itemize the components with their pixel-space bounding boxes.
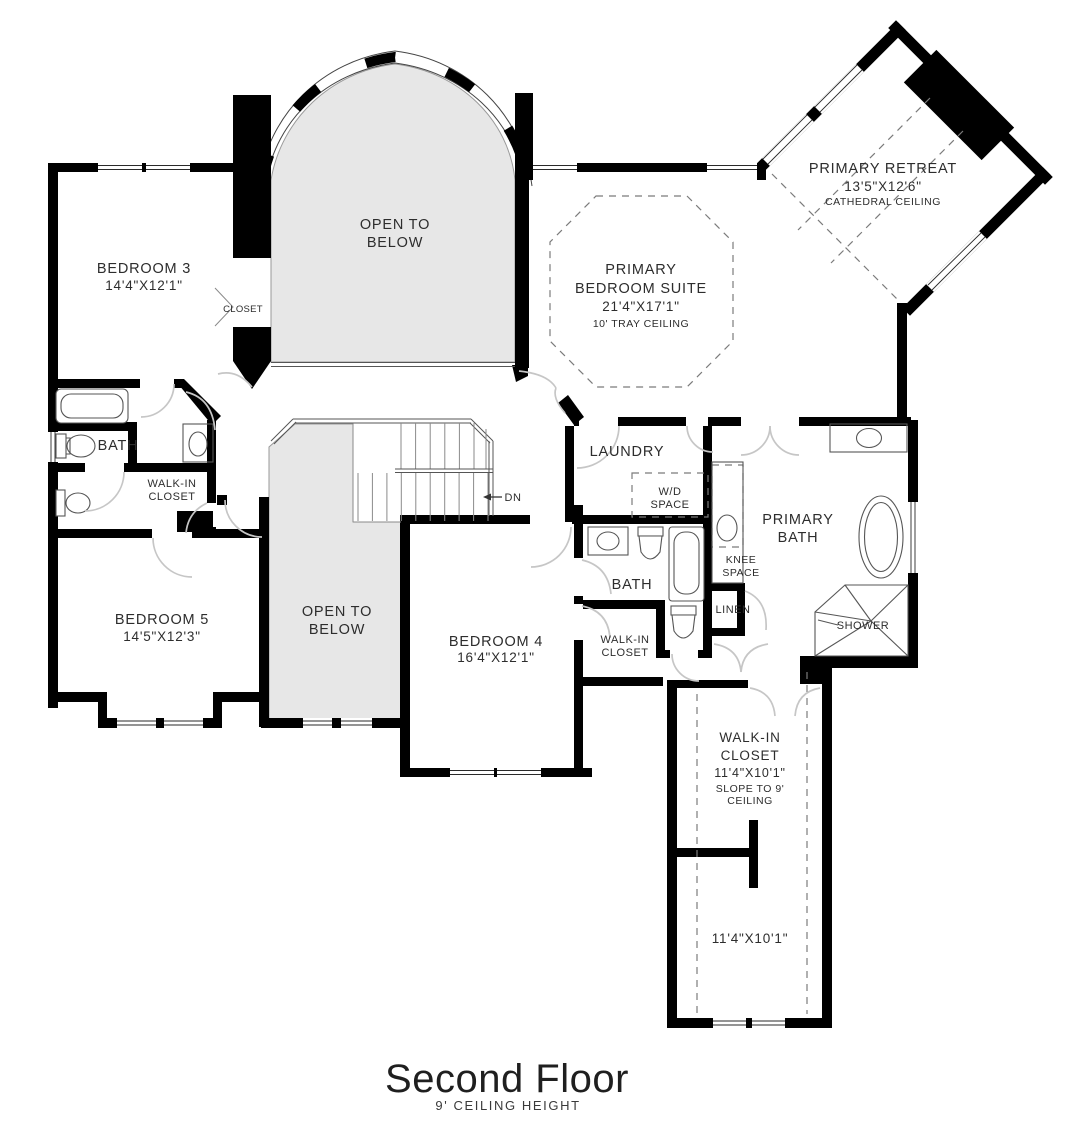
dn-label: DN [505,492,522,504]
window [146,163,190,172]
knee-label-1: KNEE [726,554,757,566]
toilet [56,490,90,516]
window [908,502,918,573]
stair-treads-upper [401,423,486,469]
knee-label-2: SPACE [722,567,759,579]
window [164,718,203,728]
toilet [56,434,95,458]
linen-label: LINEN [716,604,751,616]
closet3-label: CLOSET [223,304,263,315]
suite-label-2: BEDROOM SUITE [575,281,707,297]
wd-label-1: W/D [659,486,682,498]
bedroom5-label: BEDROOM 5 [115,612,209,628]
retreat-label: PRIMARY RETREAT [809,161,957,177]
wicp-slope-2: CEILING [727,795,773,807]
window [117,718,156,728]
bedroom3-dims: 14'4"X12'1" [105,278,183,293]
bedroom4-label: BEDROOM 4 [449,634,543,650]
open-below-top-label-2: BELOW [367,235,423,251]
window [752,1018,785,1028]
open-below-top-label-1: OPEN TO [360,217,430,233]
primary-vanity [830,424,907,452]
bedroom4-dims: 16'4"X12'1" [457,650,535,665]
shower-label: SHOWER [837,620,890,632]
bedroom3-label: BEDROOM 3 [97,261,191,277]
wicp-label-2: CLOSET [721,748,780,763]
floor-plan-page: BEDROOM 3 14'4"X12'1" CLOSET OPEN TO BEL… [0,0,1080,1137]
bath4-label: BATH [612,577,653,593]
primary-bath-label-2: BATH [778,530,819,546]
window [713,1018,746,1028]
suite-label-1: PRIMARY [605,262,676,278]
window [341,718,372,728]
wic4-label-2: CLOSET [601,647,648,659]
stair-treads-lower [358,473,488,521]
retreat-dims: 13'5"X12'6" [844,179,922,194]
window [707,163,757,172]
bedroom5-dims: 14'5"X12'3" [123,629,201,644]
suite-ceiling: 10' TRAY CEILING [593,318,689,330]
open-to-below-top-area [271,64,515,362]
open-below-mid-label-1: OPEN TO [302,604,372,620]
page-subtitle: 9' CEILING HEIGHT [435,1098,580,1113]
wic4-label-1: WALK-IN [601,634,650,646]
bathtub [669,527,704,601]
page-title: Second Floor [385,1057,629,1101]
window [303,718,332,728]
open-below-mid-label-2: BELOW [309,622,365,638]
suite-dims: 21'4"X17'1" [602,299,680,314]
wicp-label-1: WALK-IN [719,730,780,745]
bath3-label: BATH [98,438,139,454]
open-to-below-areas [269,64,515,726]
floor-plan-drawing: BEDROOM 3 14'4"X12'1" CLOSET OPEN TO BEL… [0,0,1080,1137]
bath4-sink [588,527,628,555]
laundry-label: LAUNDRY [590,444,665,460]
window [98,163,142,172]
retreat-ceiling: CATHEDRAL CEILING [825,196,941,208]
freestanding-tub [859,496,903,578]
open-to-below-mid-area [269,424,401,726]
window [497,768,541,777]
wicp-dims: 11'4"X10'1" [714,766,786,780]
wic5-label-1: WALK-IN [148,478,197,490]
window [533,163,577,172]
wicp-slope-1: SLOPE TO 9' [716,783,784,795]
toilet [671,606,696,638]
wd-label-2: SPACE [651,499,690,511]
primary-bath-label-1: PRIMARY [762,512,833,528]
wic5-label-2: CLOSET [148,491,195,503]
wicp-dims-lower: 11'4"X10'1" [712,931,789,946]
window [450,768,494,777]
toilet [638,527,663,559]
fireplace [904,50,1014,160]
